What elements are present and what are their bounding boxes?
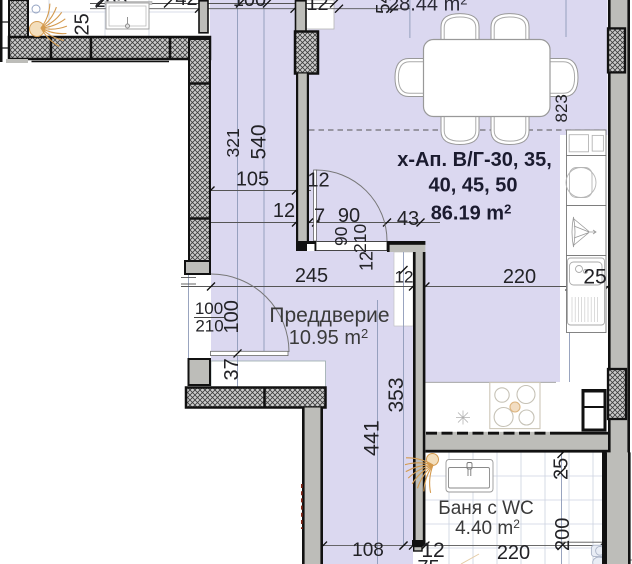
svg-text:75: 75 — [417, 557, 439, 564]
svg-text:90: 90 — [331, 226, 351, 246]
svg-text:Преддверие: Преддверие — [269, 304, 389, 327]
svg-text:105: 105 — [236, 169, 269, 191]
svg-text:42: 42 — [175, 0, 197, 10]
svg-text:108: 108 — [352, 540, 384, 561]
svg-text:210: 210 — [350, 224, 370, 253]
svg-text:220: 220 — [497, 542, 530, 564]
svg-text:10.95 m2: 10.95 m2 — [289, 326, 369, 349]
svg-text:12: 12 — [357, 251, 377, 271]
svg-text:90: 90 — [338, 205, 360, 227]
svg-text:37: 37 — [221, 358, 243, 380]
svg-text:28.44 m2: 28.44 m2 — [388, 0, 468, 16]
svg-text:86.19 m2: 86.19 m2 — [431, 202, 512, 225]
svg-text:12: 12 — [307, 170, 329, 192]
svg-text:40, 45, 50: 40, 45, 50 — [429, 175, 518, 197]
svg-text:25: 25 — [551, 458, 573, 480]
svg-text:210: 210 — [195, 317, 223, 336]
svg-text:12: 12 — [395, 268, 414, 287]
svg-text:100: 100 — [233, 0, 266, 11]
svg-text:25: 25 — [72, 13, 94, 35]
svg-text:25: 25 — [583, 266, 606, 289]
svg-text:43: 43 — [397, 208, 419, 230]
svg-text:х-Ап. В/Г-30, 35,: х-Ап. В/Г-30, 35, — [397, 149, 552, 171]
svg-text:12: 12 — [306, 0, 328, 15]
svg-text:100: 100 — [195, 299, 223, 318]
svg-text:12: 12 — [273, 200, 295, 222]
svg-text:823: 823 — [552, 94, 571, 122]
svg-text:321: 321 — [223, 128, 243, 157]
svg-text:220: 220 — [503, 266, 536, 288]
svg-text:540: 540 — [247, 124, 270, 159]
svg-text:100: 100 — [221, 300, 243, 333]
svg-text:7: 7 — [314, 205, 325, 227]
svg-text:4.40 m2: 4.40 m2 — [455, 517, 520, 539]
svg-text:245: 245 — [295, 265, 328, 287]
svg-text:353: 353 — [385, 377, 408, 412]
svg-text:200: 200 — [552, 518, 574, 551]
svg-text:441: 441 — [360, 420, 384, 456]
svg-text:Баня с WC: Баня с WC — [438, 498, 534, 519]
